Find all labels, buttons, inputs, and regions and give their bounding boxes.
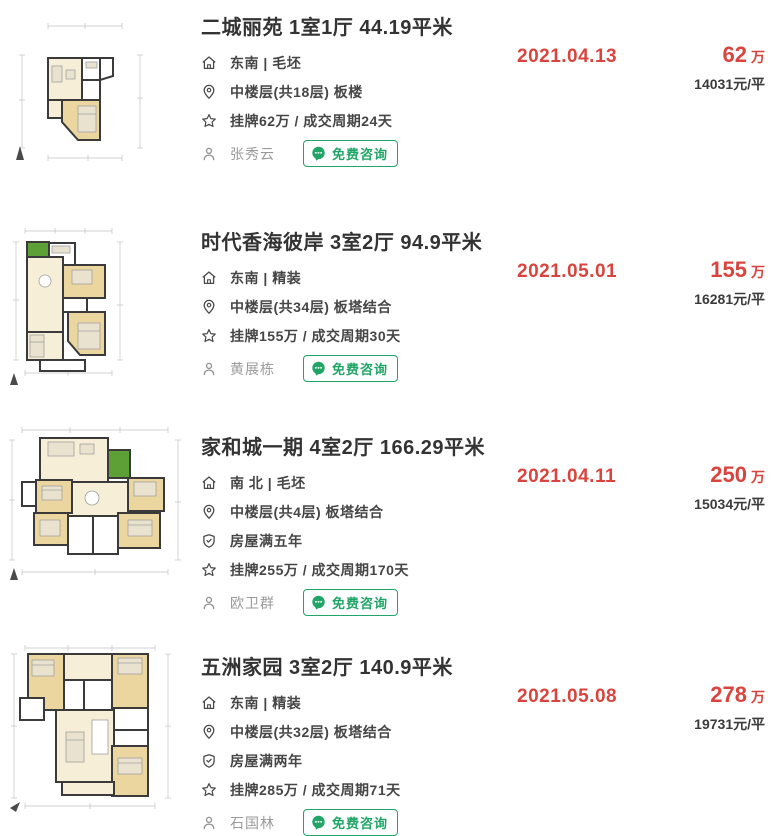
free-consult-button[interactable]: 免费咨询	[303, 355, 398, 382]
floor-text: 中楼层(共18层) 板楼	[230, 82, 363, 102]
orientation-text: 东南 | 精装	[230, 268, 301, 288]
years-row: 房屋满两年	[201, 746, 766, 775]
agent-name: 欧卫群	[230, 593, 275, 613]
star-icon	[201, 328, 217, 344]
free-consult-button[interactable]: 免费咨询	[303, 140, 398, 167]
listing-info-text: 挂牌255万 / 成交周期170天	[230, 560, 409, 580]
north-arrow	[10, 802, 20, 812]
person-icon	[201, 146, 217, 162]
agent-row: 黄展栋 免费咨询	[201, 355, 766, 382]
price-block: 250万 15034元/平	[694, 462, 765, 514]
listing-info-row: 挂牌255万 / 成交周期170天	[201, 555, 766, 584]
north-arrow	[10, 373, 18, 385]
floor-row: 中楼层(共34层) 板塔结合	[201, 292, 766, 321]
home-icon	[201, 55, 217, 71]
agent-row: 欧卫群 免费咨询	[201, 589, 766, 616]
agent-name: 石国林	[230, 813, 275, 833]
years-row: 房屋满五年	[201, 526, 766, 555]
orientation-row: 东南 | 精装	[201, 263, 766, 292]
floorplan-image[interactable]	[0, 640, 195, 818]
floorplan-image[interactable]	[0, 0, 195, 215]
consult-button-label: 免费咨询	[332, 813, 388, 832]
consult-chat-icon	[311, 146, 326, 161]
deal-date: 2021.04.13	[517, 46, 617, 68]
star-icon	[201, 113, 217, 129]
consult-chat-icon	[311, 815, 326, 830]
orientation-text: 东南 | 精装	[230, 693, 301, 713]
listing-card[interactable]: 二城丽苑 1室1厅 44.19平米 东南 | 毛坯 中楼层(共18层) 板楼 挂…	[0, 0, 778, 215]
listing-card[interactable]: 家和城一期 4室2厅 166.29平米 南 北 | 毛坯 中楼层(共4层) 板塔…	[0, 420, 778, 640]
listing-info-row: 挂牌155万 / 成交周期30天	[201, 321, 766, 350]
free-consult-button[interactable]: 免费咨询	[303, 589, 398, 616]
deal-price: 155万	[694, 257, 765, 283]
listing-info-text: 挂牌62万 / 成交周期24天	[230, 111, 392, 131]
listing-title[interactable]: 家和城一期 4室2厅 166.29平米	[201, 431, 766, 460]
deal-price: 62万	[694, 42, 765, 68]
shield-icon	[201, 753, 217, 769]
listing-title[interactable]: 二城丽苑 1室1厅 44.19平米	[201, 11, 766, 40]
floor-row: 中楼层(共18层) 板楼	[201, 77, 766, 106]
unit-price: 14031元/平	[694, 74, 765, 94]
listing-title[interactable]: 五洲家园 3室2厅 140.9平米	[201, 651, 766, 680]
floorplan-drawing	[0, 215, 195, 420]
agent-row: 张秀云 免费咨询	[201, 140, 766, 167]
location-pin-icon	[201, 84, 217, 100]
consult-button-label: 免费咨询	[332, 144, 388, 163]
shield-icon	[201, 533, 217, 549]
listing-info-text: 挂牌155万 / 成交周期30天	[230, 326, 401, 346]
floorplan-image[interactable]	[0, 420, 195, 640]
floor-text: 中楼层(共4层) 板塔结合	[230, 502, 384, 522]
north-arrow	[10, 568, 18, 580]
consult-chat-icon	[311, 361, 326, 376]
floorplan-drawing	[0, 420, 195, 640]
orientation-text: 南 北 | 毛坯	[230, 473, 306, 493]
agent-row: 石国林 免费咨询	[201, 809, 766, 836]
deal-date: 2021.05.01	[517, 261, 617, 283]
star-icon	[201, 562, 217, 578]
person-icon	[201, 595, 217, 611]
consult-button-label: 免费咨询	[332, 593, 388, 612]
unit-price: 19731元/平	[694, 714, 765, 734]
home-icon	[201, 270, 217, 286]
listing-info-text: 挂牌285万 / 成交周期71天	[230, 780, 401, 800]
consult-button-label: 免费咨询	[332, 359, 388, 378]
floorplan-drawing	[0, 0, 195, 210]
deal-date: 2021.05.08	[517, 686, 617, 708]
listing-info-row: 挂牌285万 / 成交周期71天	[201, 775, 766, 804]
listing-title[interactable]: 时代香海彼岸 3室2厅 94.9平米	[201, 226, 766, 255]
home-icon	[201, 695, 217, 711]
floorplan-image[interactable]	[0, 215, 195, 420]
price-block: 155万 16281元/平	[694, 257, 765, 309]
person-icon	[201, 361, 217, 377]
person-icon	[201, 815, 217, 831]
star-icon	[201, 782, 217, 798]
orientation-row: 南 北 | 毛坯	[201, 468, 766, 497]
floorplan-drawing	[0, 640, 195, 818]
location-pin-icon	[201, 724, 217, 740]
deal-price: 278万	[694, 682, 765, 708]
orientation-text: 东南 | 毛坯	[230, 53, 301, 73]
consult-chat-icon	[311, 595, 326, 610]
years-text: 房屋满五年	[230, 531, 303, 551]
price-block: 278万 19731元/平	[694, 682, 765, 734]
unit-price: 15034元/平	[694, 494, 765, 514]
agent-name: 张秀云	[230, 144, 275, 164]
unit-price: 16281元/平	[694, 289, 765, 309]
deal-price: 250万	[694, 462, 765, 488]
orientation-row: 东南 | 毛坯	[201, 48, 766, 77]
location-pin-icon	[201, 299, 217, 315]
listing-card[interactable]: 时代香海彼岸 3室2厅 94.9平米 东南 | 精装 中楼层(共34层) 板塔结…	[0, 215, 778, 420]
years-text: 房屋满两年	[230, 751, 303, 771]
listing-info-row: 挂牌62万 / 成交周期24天	[201, 106, 766, 135]
listing-card[interactable]: 五洲家园 3室2厅 140.9平米 东南 | 精装 中楼层(共32层) 板塔结合…	[0, 640, 778, 818]
deal-date: 2021.04.11	[517, 466, 616, 488]
floor-text: 中楼层(共32层) 板塔结合	[230, 722, 392, 742]
location-pin-icon	[201, 504, 217, 520]
floor-row: 中楼层(共32层) 板塔结合	[201, 717, 766, 746]
free-consult-button[interactable]: 免费咨询	[303, 809, 398, 836]
home-icon	[201, 475, 217, 491]
price-block: 62万 14031元/平	[694, 42, 765, 94]
floor-row: 中楼层(共4层) 板塔结合	[201, 497, 766, 526]
orientation-row: 东南 | 精装	[201, 688, 766, 717]
agent-name: 黄展栋	[230, 359, 275, 379]
floor-text: 中楼层(共34层) 板塔结合	[230, 297, 392, 317]
